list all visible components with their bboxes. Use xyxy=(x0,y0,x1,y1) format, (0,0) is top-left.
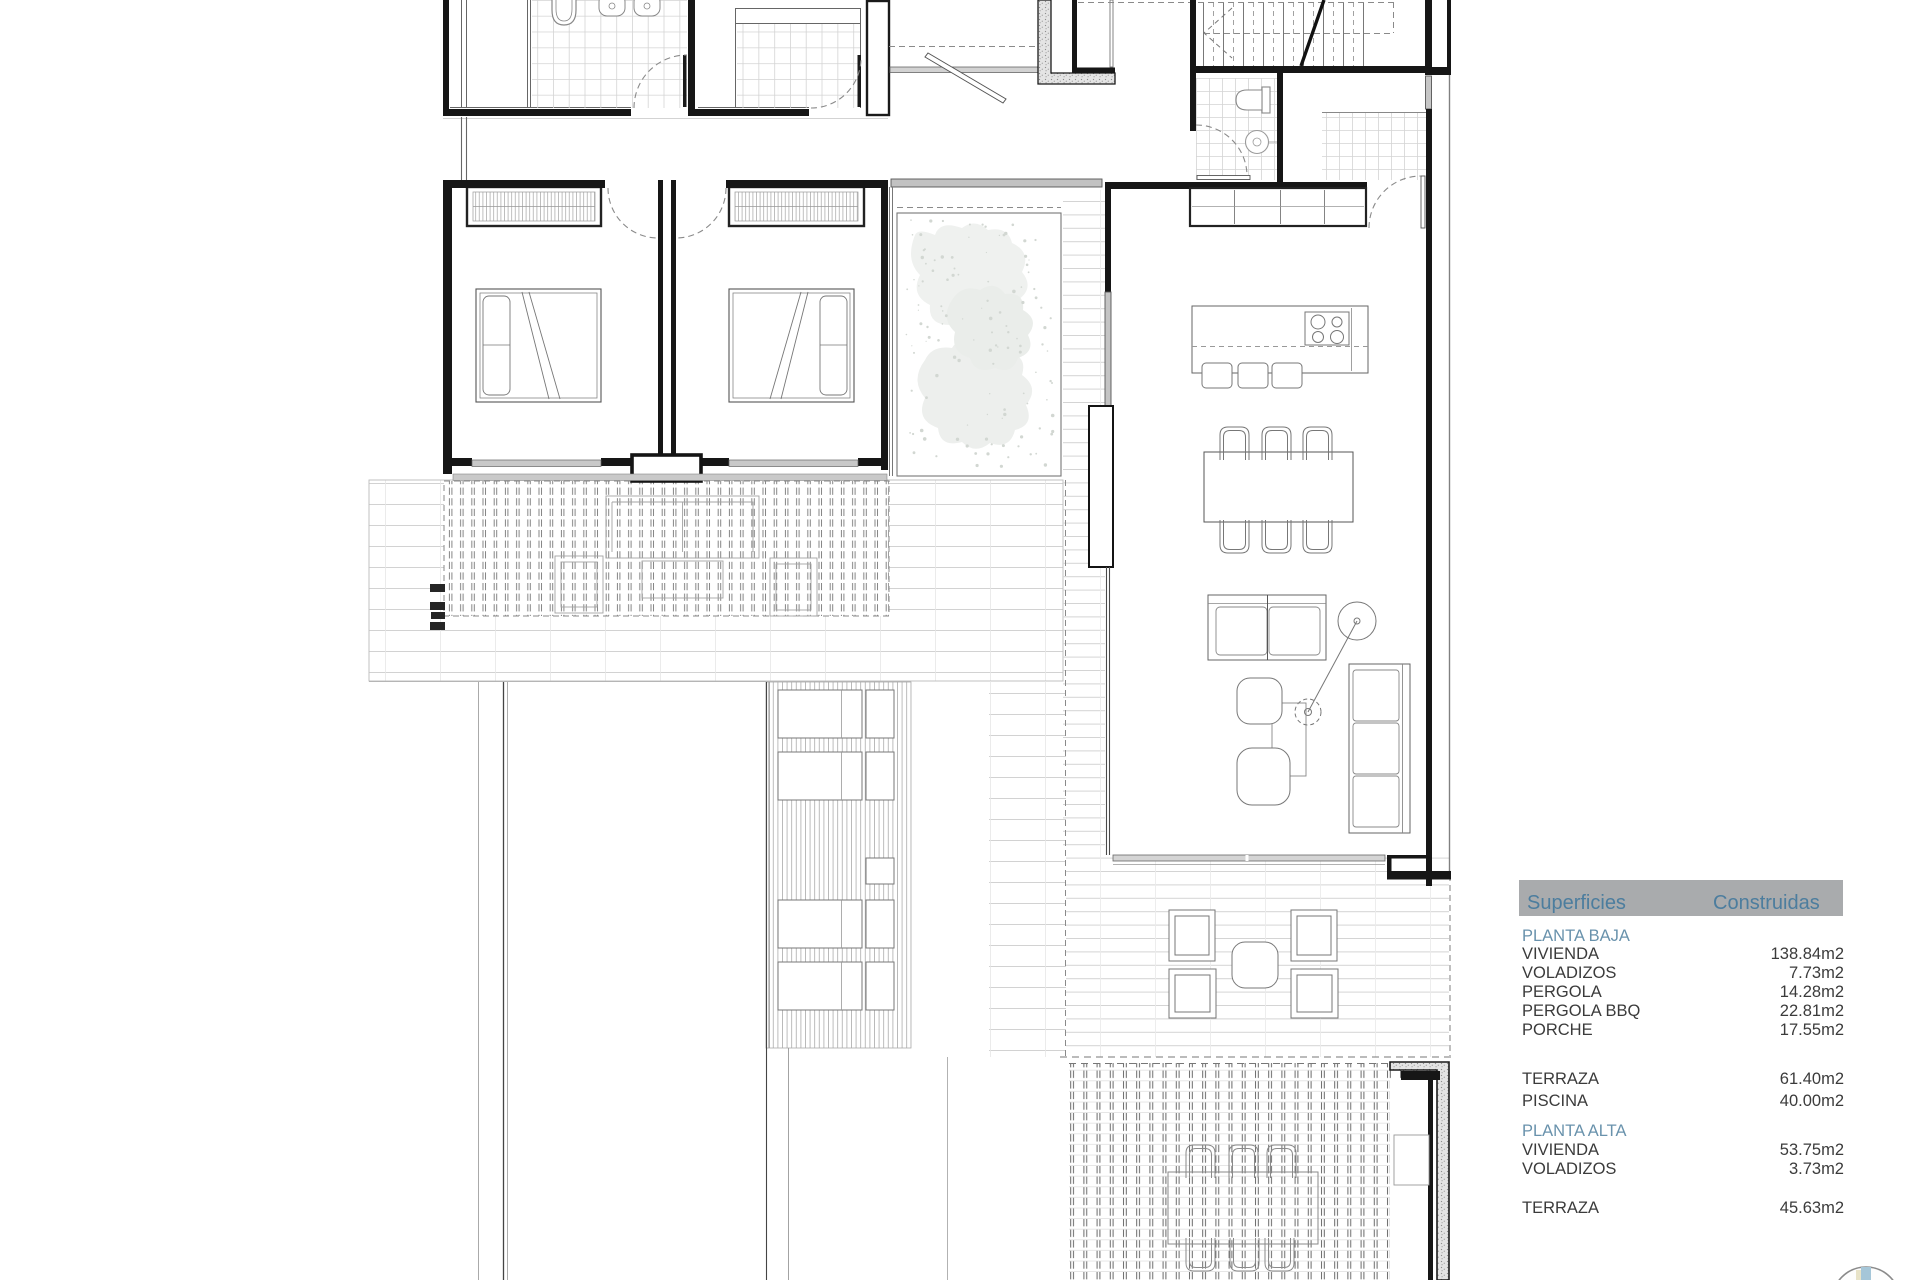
svg-text:TERRAZA: TERRAZA xyxy=(1522,1199,1599,1217)
svg-text:TERRAZA: TERRAZA xyxy=(1522,1070,1599,1088)
svg-text:PLANTA BAJA: PLANTA BAJA xyxy=(1522,927,1630,945)
svg-text:VOLADIZOS: VOLADIZOS xyxy=(1522,964,1616,982)
svg-text:17.55m2: 17.55m2 xyxy=(1780,1021,1844,1039)
svg-text:Construidas: Construidas xyxy=(1713,892,1820,914)
svg-text:7.73m2: 7.73m2 xyxy=(1789,964,1844,982)
svg-text:14.28m2: 14.28m2 xyxy=(1780,983,1844,1001)
svg-text:53.75m2: 53.75m2 xyxy=(1780,1141,1844,1159)
svg-text:PORCHE: PORCHE xyxy=(1522,1021,1593,1039)
svg-text:VIVIENDA: VIVIENDA xyxy=(1522,945,1599,963)
svg-text:40.00m2: 40.00m2 xyxy=(1780,1092,1844,1110)
svg-text:VIVIENDA: VIVIENDA xyxy=(1522,1141,1599,1159)
svg-text:PERGOLA: PERGOLA xyxy=(1522,983,1602,1001)
svg-text:PLANTA ALTA: PLANTA ALTA xyxy=(1522,1122,1627,1140)
svg-text:45.63m2: 45.63m2 xyxy=(1780,1199,1844,1217)
svg-text:VOLADIZOS: VOLADIZOS xyxy=(1522,1160,1616,1178)
svg-text:PERGOLA BBQ: PERGOLA BBQ xyxy=(1522,1002,1640,1020)
svg-text:PISCINA: PISCINA xyxy=(1522,1092,1588,1110)
svg-text:138.84m2: 138.84m2 xyxy=(1771,945,1844,963)
svg-text:61.40m2: 61.40m2 xyxy=(1780,1070,1844,1088)
svg-text:3.73m2: 3.73m2 xyxy=(1789,1160,1844,1178)
svg-text:Superficies: Superficies xyxy=(1527,892,1626,914)
svg-text:22.81m2: 22.81m2 xyxy=(1780,1002,1844,1020)
